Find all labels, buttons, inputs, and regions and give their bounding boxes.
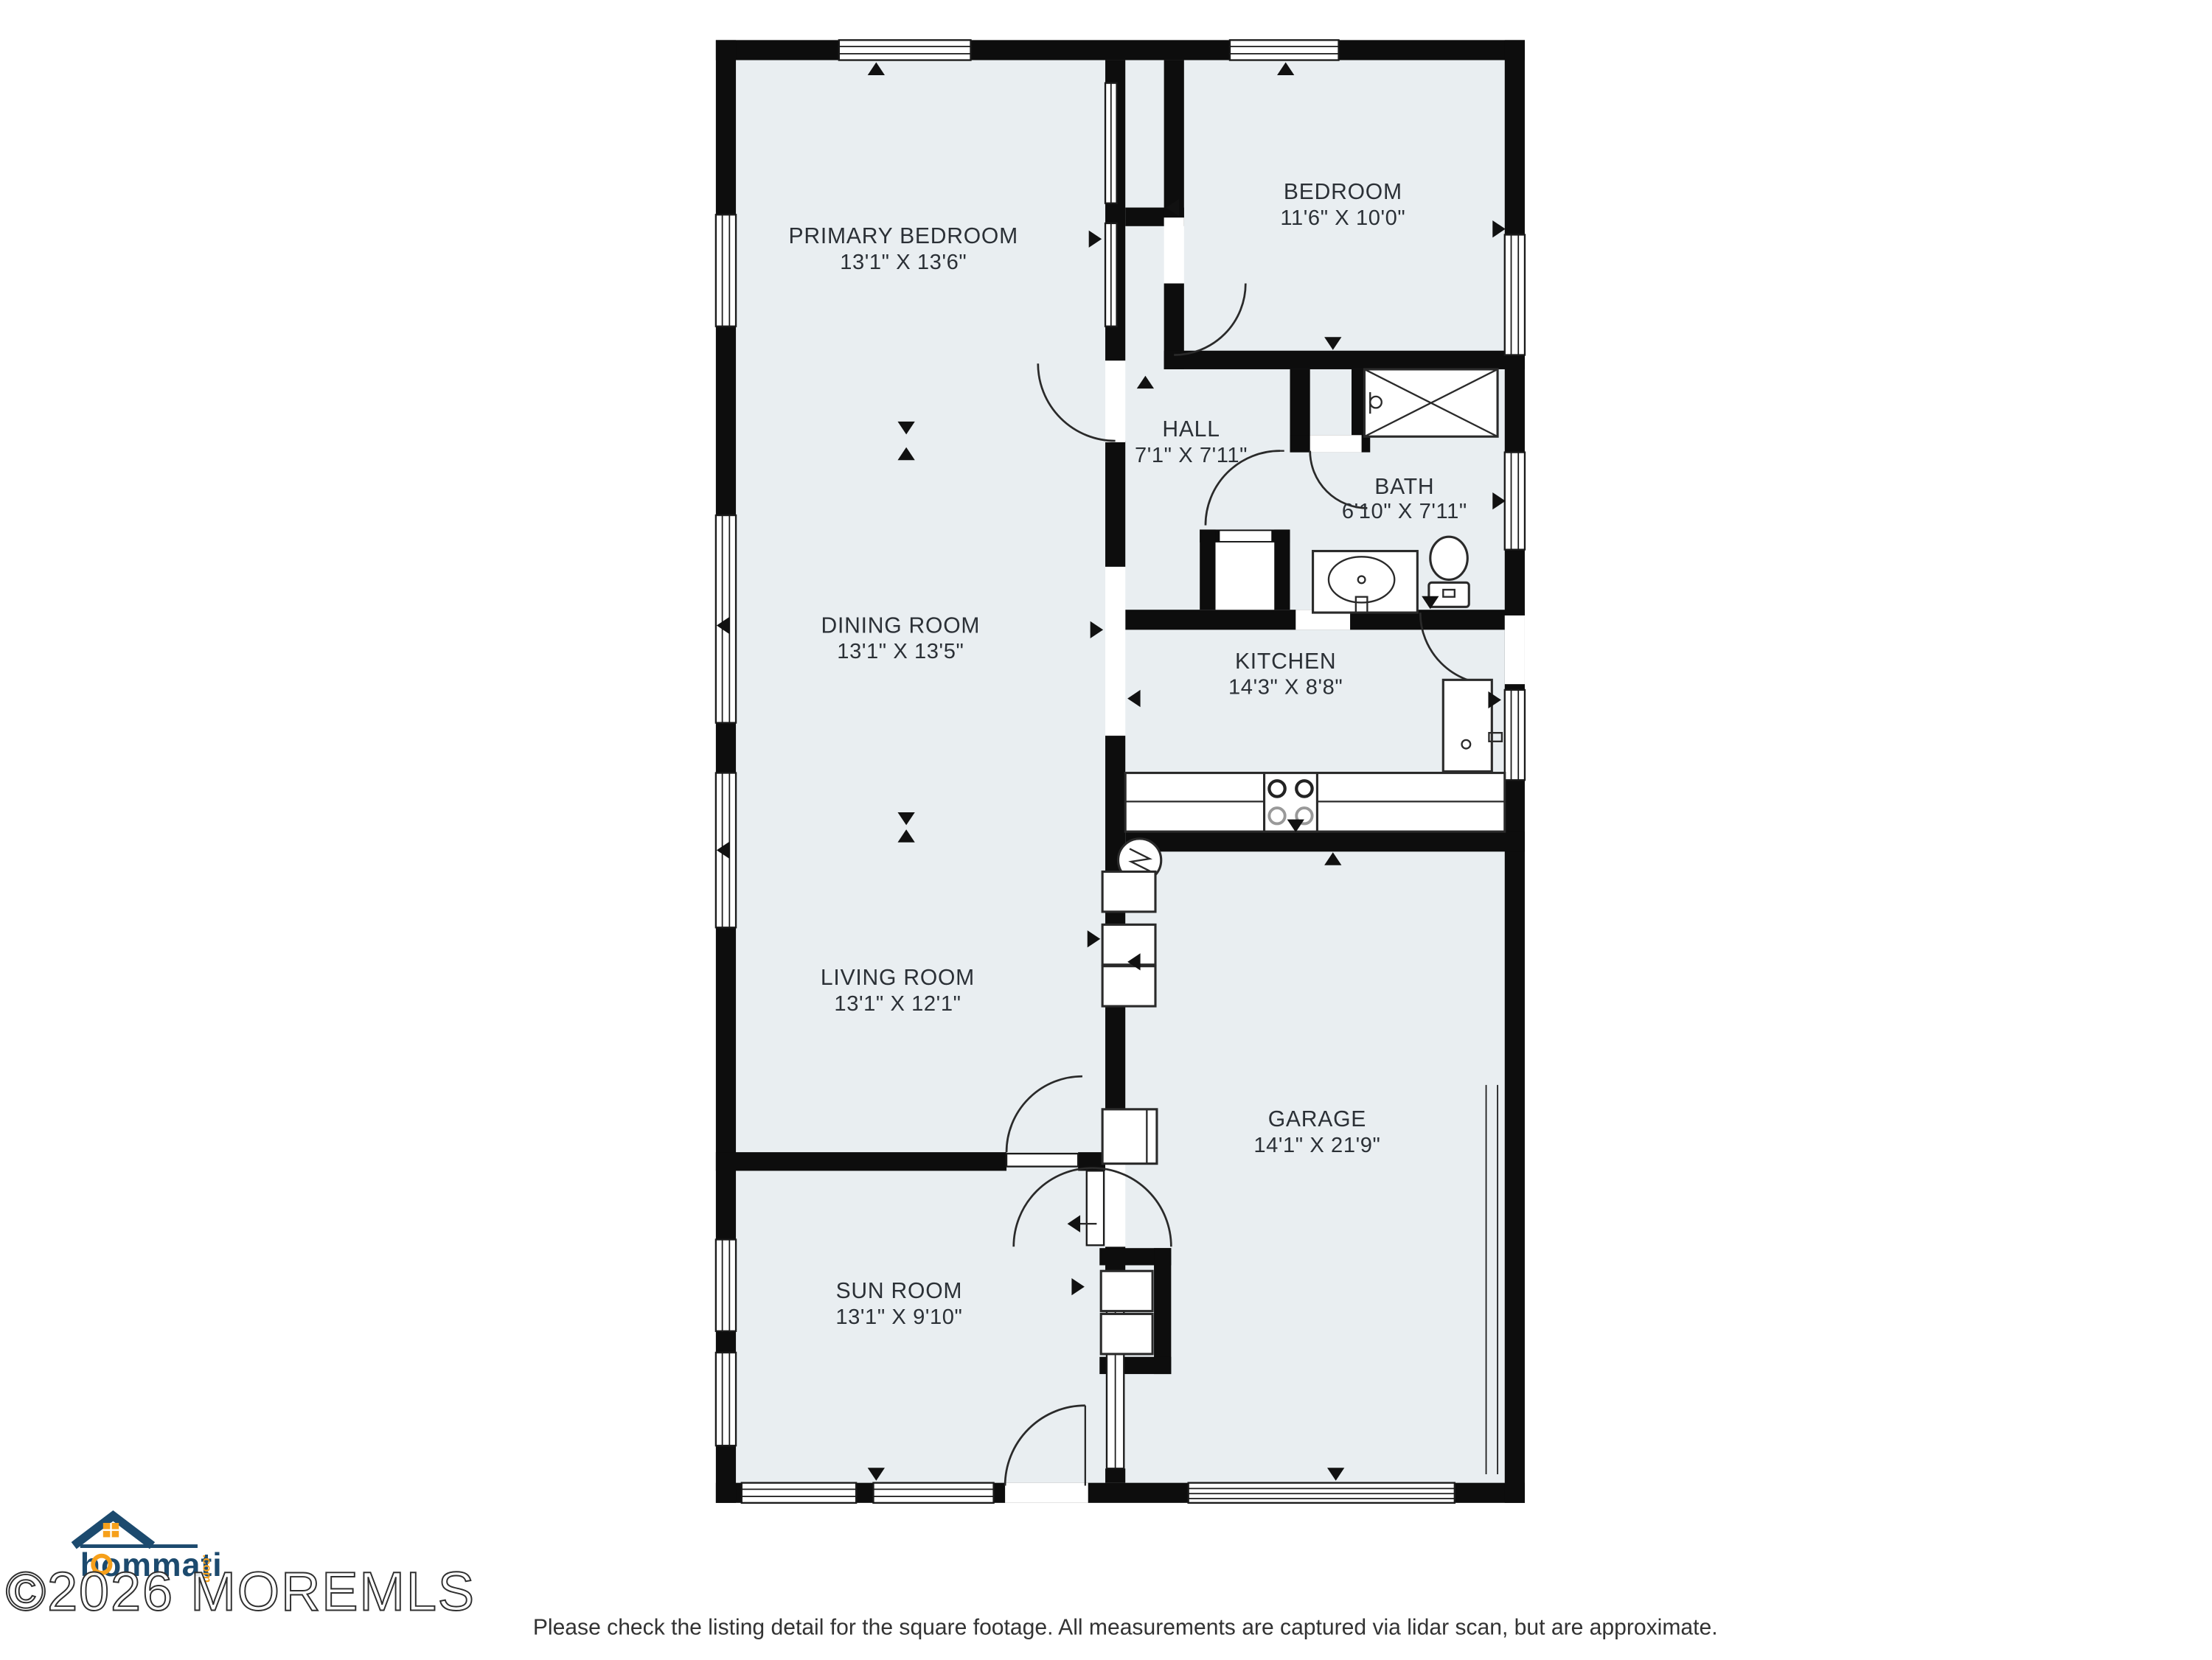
room-label-bath: BATH — [1374, 475, 1434, 499]
sink-icon — [1313, 551, 1418, 613]
bathtub-icon — [1364, 369, 1498, 436]
window-icon — [716, 515, 736, 723]
room-label-sun-room: SUN ROOM — [836, 1279, 963, 1303]
room-dims-primary-bedroom: 13'1" X 13'6" — [840, 251, 967, 274]
disclaimer-text: Please check the listing detail for the … — [533, 1615, 1718, 1639]
window-icon — [873, 1483, 993, 1503]
closet-slider-icon — [1105, 83, 1117, 203]
window-icon — [1505, 453, 1525, 550]
room-dims-hall: 7'1" X 7'11" — [1135, 444, 1248, 467]
window-icon — [716, 1353, 736, 1445]
room-label-living-room: LIVING ROOM — [821, 966, 975, 990]
room-dims-bath: 6'10" X 7'11" — [1342, 500, 1467, 523]
room-label-dining-room: DINING ROOM — [821, 613, 980, 638]
room-dims-bedroom: 11'6" X 10'0" — [1280, 206, 1405, 230]
window-icon — [839, 40, 971, 60]
room-dims-living-room: 13'1" X 12'1" — [834, 992, 961, 1016]
floorplan-page: PRIMARY BEDROOM 13'1" X 13'6" BEDROOM 11… — [0, 0, 2212, 1660]
garage-door-icon — [1189, 1483, 1455, 1503]
footer: hommati .com ©2026 MOREMLS Please check … — [6, 1516, 1718, 1639]
room-dims-dining-room: 13'1" X 13'5" — [837, 640, 964, 663]
window-icon — [716, 215, 736, 326]
mls-watermark: ©2026 MOREMLS — [6, 1560, 476, 1622]
window-icon — [1505, 690, 1525, 780]
room-dims-garage: 14'1" X 21'9" — [1253, 1134, 1380, 1157]
floorplan-drawing: PRIMARY BEDROOM 13'1" X 13'6" BEDROOM 11… — [0, 0, 2212, 1660]
room-dims-kitchen: 14'3" X 8'8" — [1228, 676, 1343, 700]
room-label-primary-bedroom: PRIMARY BEDROOM — [789, 224, 1018, 248]
window-icon — [716, 1240, 736, 1331]
window-icon — [742, 1483, 856, 1503]
room-dims-sun-room: 13'1" X 9'10" — [835, 1305, 962, 1329]
window-icon — [1230, 40, 1339, 60]
window-icon — [1505, 234, 1525, 355]
door-leaf — [1006, 1154, 1078, 1166]
room-label-hall: HALL — [1162, 417, 1220, 442]
closet-slider-icon — [1105, 223, 1117, 327]
room-label-bedroom: BEDROOM — [1284, 180, 1402, 204]
room-label-garage: GARAGE — [1268, 1107, 1366, 1131]
door-leaf — [1087, 1171, 1104, 1245]
room-label-kitchen: KITCHEN — [1235, 649, 1336, 674]
